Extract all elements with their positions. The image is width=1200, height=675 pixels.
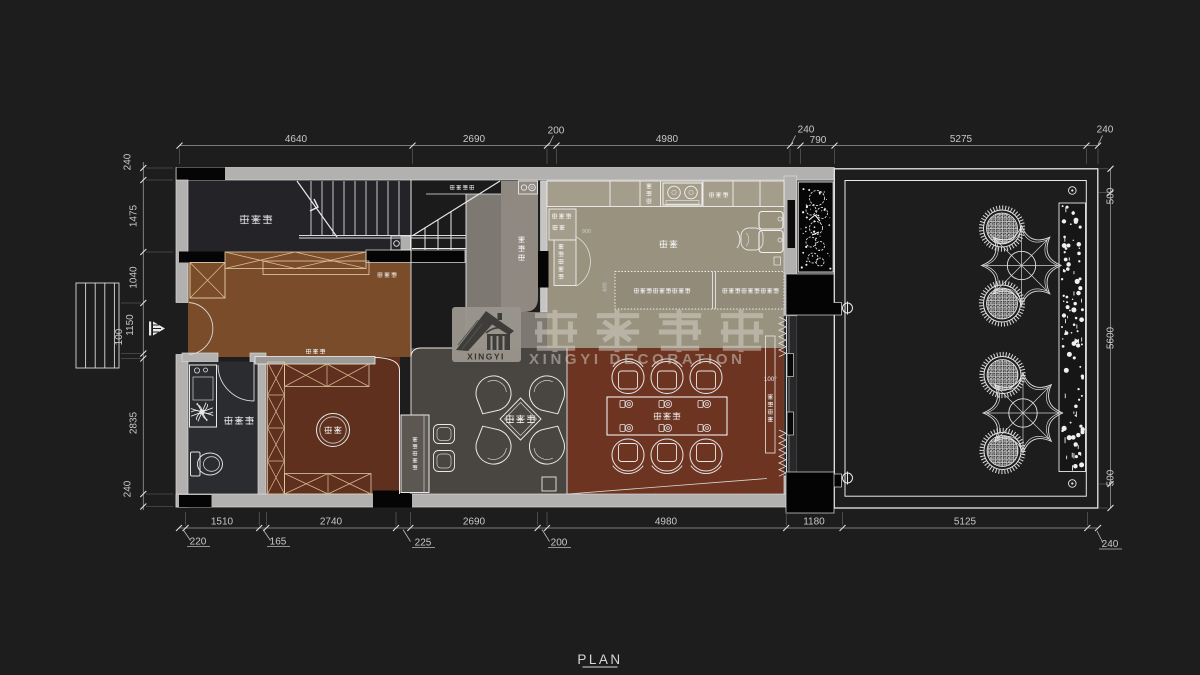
svg-text:240: 240 [798,125,815,136]
svg-text:600: 600 [603,282,609,291]
svg-text:1510: 1510 [211,517,234,528]
svg-text:100: 100 [114,328,125,345]
svg-text:XINGYI DECORATION: XINGYI DECORATION [529,351,745,368]
svg-text:2690: 2690 [463,134,486,145]
svg-text:100°: 100° [764,376,777,383]
svg-text:240: 240 [123,480,134,497]
svg-text:220: 220 [190,537,207,548]
svg-text:1180: 1180 [803,517,825,528]
svg-text:225: 225 [415,538,432,549]
svg-text:2835: 2835 [129,411,140,434]
svg-text:4980: 4980 [655,517,678,528]
svg-text:200: 200 [548,126,565,137]
svg-text:240: 240 [1102,539,1119,550]
svg-text:4980: 4980 [656,134,679,145]
svg-text:5125: 5125 [954,517,977,528]
svg-text:240: 240 [123,153,134,170]
svg-text:790: 790 [810,135,827,146]
svg-text:PLAN: PLAN [577,652,622,667]
svg-text:5275: 5275 [950,134,973,145]
svg-text:500: 500 [1106,469,1117,486]
svg-text:2740: 2740 [320,517,343,528]
svg-text:XINGYI: XINGYI [467,352,505,362]
svg-text:165: 165 [270,537,287,548]
svg-text:900: 900 [582,229,591,235]
svg-text:2690: 2690 [463,517,486,528]
svg-text:4640: 4640 [285,134,308,145]
svg-text:5600: 5600 [1106,326,1117,349]
svg-text:1475: 1475 [129,204,140,227]
svg-text:500: 500 [1106,187,1117,204]
svg-text:1040: 1040 [129,266,140,289]
svg-text:200: 200 [551,538,568,549]
svg-text:240: 240 [1097,125,1114,136]
svg-text:1150: 1150 [125,314,136,336]
